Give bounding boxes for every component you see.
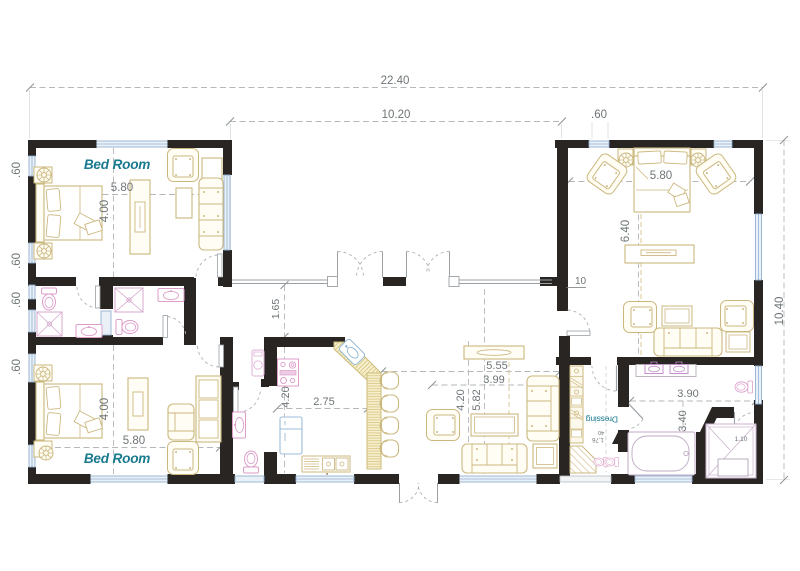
svg-text:10.40: 10.40	[774, 297, 786, 326]
svg-text:6.40: 6.40	[620, 220, 632, 242]
svg-text:3.99: 3.99	[483, 374, 504, 386]
svg-text:5.80: 5.80	[111, 182, 133, 194]
svg-text:3.40: 3.40	[677, 410, 689, 431]
svg-text:2.75: 2.75	[313, 396, 334, 408]
svg-text:.60: .60	[11, 253, 23, 269]
svg-text:■: ■	[326, 472, 328, 476]
svg-text:4.00: 4.00	[99, 200, 111, 222]
svg-text:40: 40	[598, 429, 604, 435]
svg-text:10.20: 10.20	[382, 109, 411, 121]
svg-text:4.20: 4.20	[280, 386, 292, 407]
svg-text:1.10: 1.10	[735, 436, 748, 443]
svg-text:Dressing: Dressing	[586, 415, 618, 425]
svg-text:22.40: 22.40	[381, 75, 410, 87]
svg-text:.60: .60	[11, 162, 23, 178]
svg-text:4.20: 4.20	[455, 389, 467, 410]
svg-text:.60: .60	[11, 292, 23, 308]
svg-text:5.55: 5.55	[486, 360, 507, 372]
svg-text:1.65: 1.65	[270, 299, 282, 320]
svg-text:.60: .60	[591, 109, 607, 121]
svg-text:1.76: 1.76	[592, 436, 604, 442]
svg-text:10: 10	[575, 276, 587, 287]
svg-text:3.90: 3.90	[677, 388, 698, 400]
svg-text:Bed Room: Bed Room	[84, 157, 150, 172]
svg-text:4.00: 4.00	[99, 398, 111, 420]
svg-text:Bed Room: Bed Room	[84, 451, 150, 466]
svg-text:5.80: 5.80	[123, 435, 145, 447]
svg-text:5.82: 5.82	[471, 389, 483, 410]
svg-text:5.80: 5.80	[650, 170, 672, 182]
svg-text:.60: .60	[11, 359, 23, 375]
